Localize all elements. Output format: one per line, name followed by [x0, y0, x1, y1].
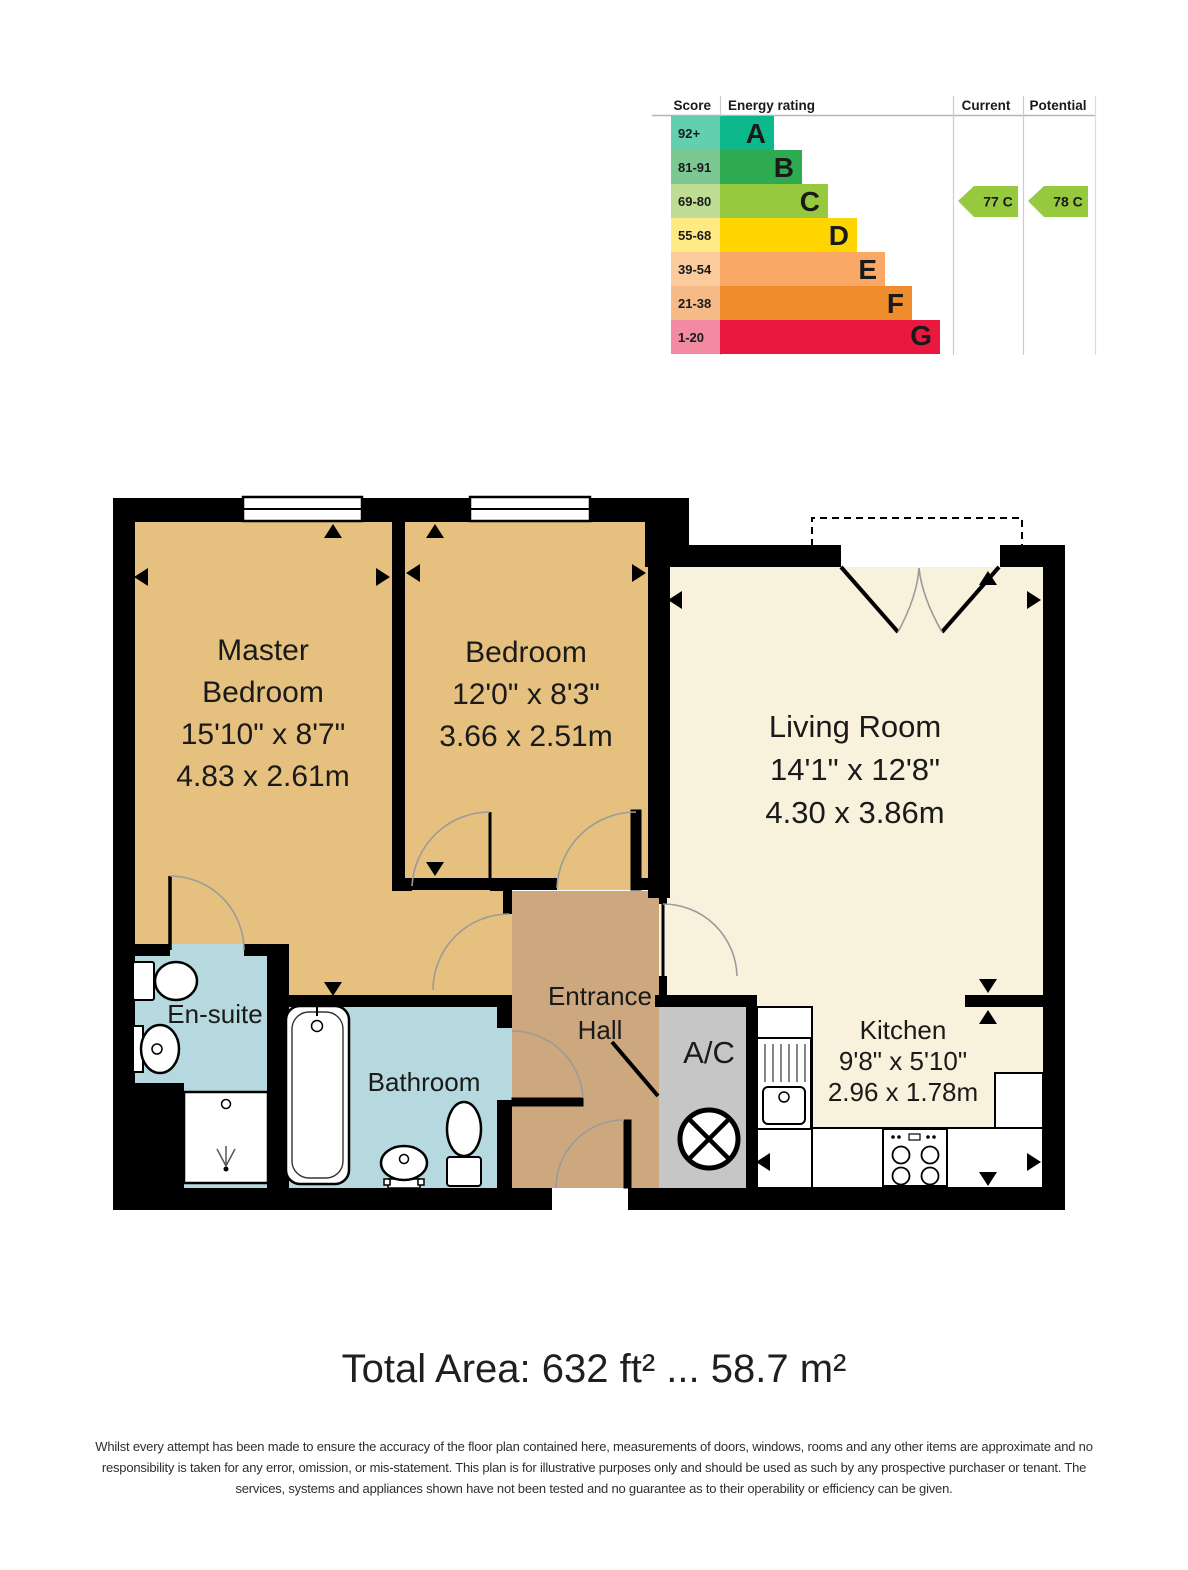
- master-label-2: Bedroom: [202, 676, 324, 709]
- total-area-text: Total Area: 632 ft² ... 58.7 m²: [342, 1347, 847, 1391]
- master-label-1: Master: [217, 634, 309, 667]
- epc-band-letter: A: [746, 118, 766, 149]
- ac-fan-icon: [680, 1110, 738, 1168]
- hall-label-1: Entrance: [548, 981, 652, 1011]
- bedroom-dims-m: 3.66 x 2.51m: [439, 720, 612, 753]
- disclaimer-line-2: responsibility is taken for any error, o…: [102, 1460, 1086, 1475]
- epc-potential-badge: 78 C: [1028, 186, 1088, 217]
- sink-icon: [133, 1025, 179, 1073]
- epc-row-b: 81-91 B: [671, 150, 802, 184]
- bathroom-label: Bathroom: [368, 1067, 481, 1097]
- epc-score-label: 81-91: [678, 160, 711, 175]
- master-dims-m: 4.83 x 2.61m: [176, 760, 349, 793]
- window-bedroom: [470, 497, 590, 521]
- hall-label-2: Hall: [578, 1015, 623, 1045]
- epc-score-header: Score: [673, 98, 711, 113]
- epc-row-g: 1-20 G: [671, 320, 940, 354]
- toilet-icon: [133, 962, 197, 1000]
- ac-label: A/C: [683, 1035, 735, 1070]
- balcony: [812, 518, 1022, 567]
- disclaimer-line-3: services, systems and appliances shown h…: [235, 1481, 952, 1496]
- bathtub-icon: [286, 1006, 349, 1184]
- epc-band-letter: F: [887, 288, 904, 319]
- epc-row-d: 55-68 D: [671, 218, 857, 252]
- epc-band-letter: G: [910, 320, 932, 351]
- epc-score-label: 1-20: [678, 330, 704, 345]
- epc-row-c: 69-80 C: [671, 184, 828, 218]
- kitchen-sink-icon: [757, 1038, 811, 1129]
- bedroom-dims-ft: 12'0" x 8'3": [452, 678, 600, 711]
- epc-row-f: 21-38 F: [671, 286, 912, 320]
- epc-band-letter: D: [829, 220, 849, 251]
- kitchen-counter-right: [995, 1073, 1043, 1128]
- floor-plan: Master Bedroom 15'10" x 8'7" 4.83 x 2.61…: [113, 497, 1065, 1210]
- epc-bar: [720, 286, 912, 320]
- living-dims-ft: 14'1" x 12'8": [770, 752, 940, 787]
- epc-score-label: 92+: [678, 126, 700, 141]
- kitchen-dims-ft: 9'8" x 5'10": [839, 1046, 967, 1076]
- bathroom-toilet-icon: [447, 1102, 481, 1186]
- kitchen-label: Kitchen: [860, 1015, 947, 1045]
- epc-band-letter: C: [800, 186, 820, 217]
- stove-icon: [883, 1129, 947, 1186]
- page-canvas: Score Energy rating Current Potential 92…: [0, 0, 1188, 1570]
- living-dims-m: 4.30 x 3.86m: [765, 795, 944, 830]
- epc-current-badge: 77 C: [958, 186, 1018, 217]
- epc-band-letter: B: [774, 152, 794, 183]
- epc-score-label: 21-38: [678, 296, 711, 311]
- epc-chart: Score Energy rating Current Potential 92…: [652, 96, 1096, 355]
- living-label: Living Room: [769, 709, 941, 744]
- epc-current-header: Current: [962, 98, 1011, 113]
- kitchen-dims-m: 2.96 x 1.78m: [828, 1077, 978, 1107]
- epc-potential-value: 78 C: [1053, 194, 1083, 210]
- epc-potential-header: Potential: [1029, 98, 1086, 113]
- epc-score-label: 39-54: [678, 262, 712, 277]
- disclaimer-line-1: Whilst every attempt has been made to en…: [95, 1439, 1093, 1454]
- ensuite-label: En-suite: [167, 999, 262, 1029]
- master-dims-ft: 15'10" x 8'7": [181, 718, 346, 751]
- shower-icon: [184, 1092, 268, 1183]
- epc-bar: [720, 320, 940, 354]
- epc-score-label: 55-68: [678, 228, 711, 243]
- bedroom-label: Bedroom: [465, 636, 587, 669]
- epc-current-value: 77 C: [983, 194, 1013, 210]
- epc-band-letter: E: [858, 254, 877, 285]
- epc-rating-header: Energy rating: [728, 98, 815, 113]
- epc-score-label: 69-80: [678, 194, 711, 209]
- epc-row-e: 39-54 E: [671, 252, 885, 286]
- window-master: [243, 497, 362, 521]
- epc-row-a: 92+ A: [671, 116, 774, 150]
- bathroom-sink-icon: [381, 1146, 427, 1188]
